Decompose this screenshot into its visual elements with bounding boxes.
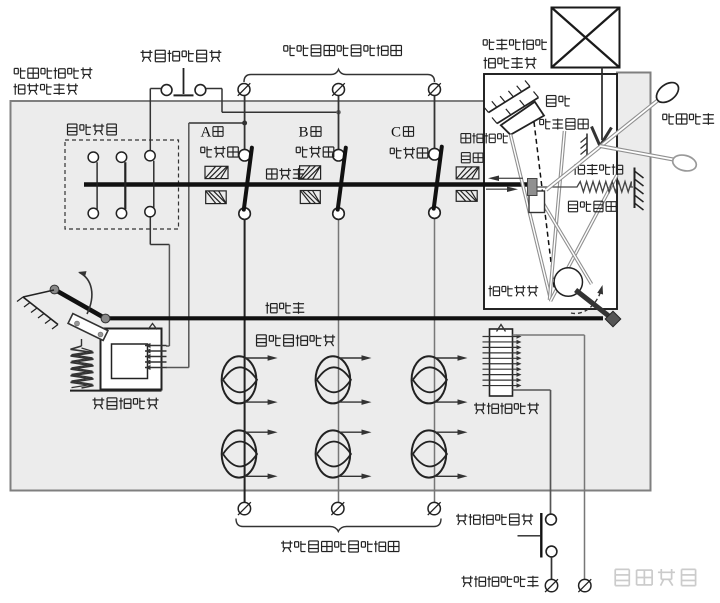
svg-text:C: C bbox=[391, 125, 401, 141]
svg-text:A: A bbox=[201, 125, 212, 141]
svg-text:B: B bbox=[299, 125, 309, 141]
